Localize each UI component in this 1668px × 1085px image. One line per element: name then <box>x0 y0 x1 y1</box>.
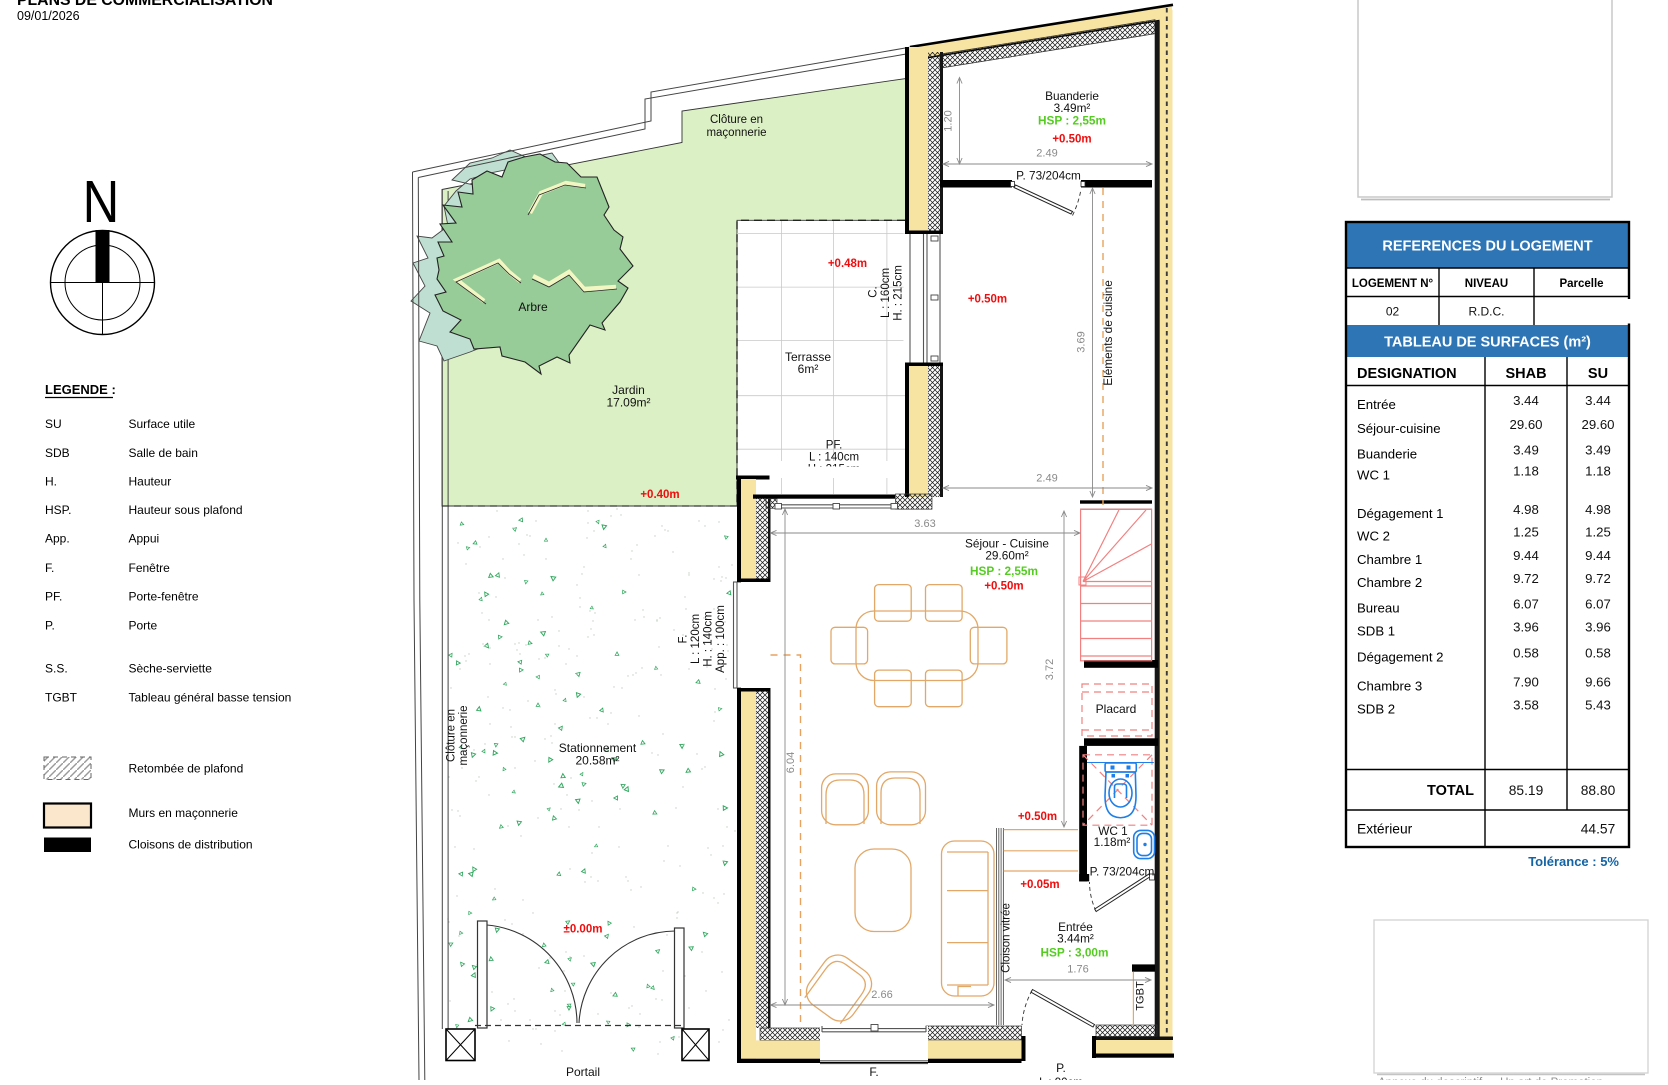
svg-text:P. 73/204cm: P. 73/204cm <box>1090 865 1155 879</box>
svg-text:3.49: 3.49 <box>1585 443 1611 458</box>
svg-text:3.72: 3.72 <box>1044 659 1056 680</box>
svg-text:Séjour-cuisine: Séjour-cuisine <box>1357 421 1441 436</box>
svg-text:HSP : 2,55m: HSP : 2,55m <box>1038 114 1106 128</box>
svg-text:N: N <box>83 168 120 234</box>
svg-text:3.44: 3.44 <box>1513 393 1539 408</box>
svg-text:HSP : 3,00m: HSP : 3,00m <box>1041 946 1109 960</box>
svg-text:Fenêtre: Fenêtre <box>129 561 171 575</box>
svg-text:20.58m²: 20.58m² <box>575 754 619 768</box>
svg-text:Hauteur sous plafond: Hauteur sous plafond <box>129 503 243 517</box>
svg-text:Appui: Appui <box>129 532 160 546</box>
svg-text:Clôture en: Clôture en <box>710 114 763 126</box>
svg-text:Salle de bain: Salle de bain <box>129 446 198 460</box>
svg-text:L : 140cm: L : 140cm <box>809 452 859 464</box>
svg-text:17.09m²: 17.09m² <box>606 396 650 410</box>
svg-text:SDB 2: SDB 2 <box>1357 702 1395 717</box>
svg-text:NIVEAU: NIVEAU <box>1465 278 1508 290</box>
svg-text:9.66: 9.66 <box>1585 675 1611 690</box>
svg-text:C.: C. <box>868 286 880 298</box>
svg-text:3.44m²: 3.44m² <box>1057 932 1094 946</box>
svg-text:Hauteur: Hauteur <box>129 475 172 489</box>
svg-text:Tolérance : 5%: Tolérance : 5% <box>1528 854 1619 869</box>
svg-text:Retombée de plafond: Retombée de plafond <box>129 762 244 776</box>
svg-text:Porte-fenêtre: Porte-fenêtre <box>129 590 199 604</box>
svg-text:Tableau général basse tension: Tableau général basse tension <box>129 690 292 704</box>
svg-text:TOTAL: TOTAL <box>1427 783 1474 799</box>
svg-text:Extérieur: Extérieur <box>1357 822 1413 837</box>
svg-text:Porte: Porte <box>129 619 158 633</box>
svg-text:+0.05m: +0.05m <box>1020 879 1059 891</box>
svg-text:SDB: SDB <box>45 446 70 460</box>
svg-text:H. : 140cm: H. : 140cm <box>703 611 715 667</box>
svg-text:4.98: 4.98 <box>1513 502 1539 517</box>
svg-text:9.72: 9.72 <box>1585 571 1611 586</box>
svg-text:+0.50m: +0.50m <box>984 581 1023 593</box>
svg-text:+0.40m: +0.40m <box>640 489 679 501</box>
svg-text:Cloison vitrée: Cloison vitrée <box>1001 903 1013 973</box>
svg-text:3.49: 3.49 <box>1513 443 1539 458</box>
svg-text:7.90: 7.90 <box>1513 675 1539 690</box>
svg-text:P.: P. <box>1056 1061 1066 1075</box>
svg-text:Bureau: Bureau <box>1357 601 1400 616</box>
svg-text:29.60: 29.60 <box>1509 417 1542 432</box>
svg-text:PLANS DE COMMERCIALISATION: PLANS DE COMMERCIALISATION <box>17 0 273 9</box>
svg-text:Portail: Portail <box>566 1065 600 1079</box>
svg-text:+0.50m: +0.50m <box>1052 134 1091 146</box>
svg-text:Placard: Placard <box>1096 702 1137 716</box>
svg-text:Sèche-serviette: Sèche-serviette <box>129 662 213 676</box>
svg-text:TGBT: TGBT <box>1135 981 1147 1011</box>
svg-text:PF.: PF. <box>826 440 843 452</box>
svg-text:Dégagement 1: Dégagement 1 <box>1357 506 1444 521</box>
svg-text:1.20: 1.20 <box>943 110 955 131</box>
svg-text:H. : 215cm: H. : 215cm <box>893 265 905 321</box>
svg-text:SU: SU <box>1588 366 1608 382</box>
svg-text:SDB 1: SDB 1 <box>1357 624 1395 639</box>
svg-text:SU: SU <box>45 417 62 431</box>
svg-text:Clôture en: Clôture en <box>446 709 458 762</box>
svg-text:maçonnerie: maçonnerie <box>458 705 470 765</box>
svg-text:09/01/2026: 09/01/2026 <box>17 9 80 23</box>
svg-text:Arbre: Arbre <box>518 300 548 314</box>
svg-text:S.S.: S.S. <box>45 662 68 676</box>
svg-text:L : 120cm: L : 120cm <box>690 614 702 664</box>
svg-text:Parcelle: Parcelle <box>1559 278 1603 290</box>
svg-text:Dégagement 2: Dégagement 2 <box>1357 650 1444 665</box>
svg-text:9.44: 9.44 <box>1513 548 1539 563</box>
svg-text:HSP : 2,55m: HSP : 2,55m <box>970 564 1038 578</box>
svg-text:6.04: 6.04 <box>785 752 797 773</box>
svg-text:5.43: 5.43 <box>1585 698 1611 713</box>
svg-text:+0.50m: +0.50m <box>968 294 1007 306</box>
svg-text:±0.00m: ±0.00m <box>564 924 603 936</box>
svg-text:0.58: 0.58 <box>1585 646 1611 661</box>
svg-text:3.63: 3.63 <box>914 518 935 530</box>
svg-text:4.98: 4.98 <box>1585 502 1611 517</box>
svg-text:Surface utile: Surface utile <box>129 417 196 431</box>
svg-text:WC 2: WC 2 <box>1357 529 1390 544</box>
svg-text:App. : 100cm: App. : 100cm <box>715 605 727 673</box>
svg-text:6.07: 6.07 <box>1513 597 1539 612</box>
svg-text:1.76: 1.76 <box>1067 964 1088 976</box>
svg-text:F.: F. <box>869 1065 878 1079</box>
svg-text:1.25: 1.25 <box>1585 525 1611 540</box>
svg-text:6m²: 6m² <box>798 362 819 376</box>
svg-text:DESIGNATION: DESIGNATION <box>1357 366 1457 382</box>
svg-text:3.96: 3.96 <box>1513 620 1539 635</box>
svg-text:0.58: 0.58 <box>1513 646 1539 661</box>
svg-text:Chambre 3: Chambre 3 <box>1357 679 1422 694</box>
svg-text:maçonnerie: maçonnerie <box>706 127 766 139</box>
svg-text:Buanderie: Buanderie <box>1357 447 1417 462</box>
svg-text:H.: H. <box>45 475 57 489</box>
svg-text:2.66: 2.66 <box>871 989 892 1001</box>
svg-text:R.D.C.: R.D.C. <box>1469 305 1505 319</box>
svg-text:3.58: 3.58 <box>1513 698 1539 713</box>
svg-text:Cloisons de distribution: Cloisons de distribution <box>129 838 253 852</box>
svg-text:WC 1: WC 1 <box>1357 468 1390 483</box>
svg-text:Eléments de cuisine: Eléments de cuisine <box>1101 280 1115 386</box>
svg-text:Chambre 1: Chambre 1 <box>1357 552 1422 567</box>
svg-text:3.69: 3.69 <box>1076 331 1088 352</box>
svg-text:+0.50m: +0.50m <box>1018 811 1057 823</box>
svg-text:LOGEMENT N°: LOGEMENT N° <box>1352 278 1434 290</box>
svg-text:LEGENDE :: LEGENDE : <box>45 382 116 397</box>
svg-text:SHAB: SHAB <box>1505 366 1546 382</box>
svg-text:2.49: 2.49 <box>1036 148 1057 160</box>
svg-text:Murs en maçonnerie: Murs en maçonnerie <box>129 806 239 820</box>
svg-text:29.60: 29.60 <box>1581 417 1614 432</box>
svg-text:9.44: 9.44 <box>1585 548 1611 563</box>
svg-text:L : 160cm: L : 160cm <box>880 268 892 318</box>
svg-text:9.72: 9.72 <box>1513 571 1539 586</box>
svg-text:App.: App. <box>45 532 70 546</box>
svg-text:1.18: 1.18 <box>1513 464 1539 479</box>
svg-text:1.18m²: 1.18m² <box>1094 835 1131 849</box>
svg-text:Chambre 2: Chambre 2 <box>1357 575 1422 590</box>
svg-text:02: 02 <box>1386 305 1400 319</box>
svg-text:1.18: 1.18 <box>1585 464 1611 479</box>
svg-text:+0.48m: +0.48m <box>828 258 867 270</box>
svg-text:F.: F. <box>45 561 54 575</box>
svg-text:Entrée: Entrée <box>1357 397 1396 412</box>
svg-text:F.: F. <box>678 635 690 644</box>
svg-text:85.19: 85.19 <box>1509 783 1544 798</box>
svg-text:REFERENCES DU LOGEMENT: REFERENCES DU LOGEMENT <box>1382 239 1592 255</box>
svg-text:44.57: 44.57 <box>1581 822 1616 837</box>
svg-text:TGBT: TGBT <box>45 690 78 704</box>
svg-text:3.44: 3.44 <box>1585 393 1611 408</box>
svg-text:6.07: 6.07 <box>1585 597 1611 612</box>
svg-text:TABLEAU DE SURFACES (m²): TABLEAU DE SURFACES (m²) <box>1384 335 1591 351</box>
svg-text:2.49: 2.49 <box>1036 473 1057 485</box>
svg-text:29.60m²: 29.60m² <box>985 549 1028 563</box>
svg-text:P.: P. <box>45 619 55 633</box>
svg-text:PF.: PF. <box>45 590 62 604</box>
svg-text:88.80: 88.80 <box>1581 783 1616 798</box>
svg-text:P. 73/204cm: P. 73/204cm <box>1016 169 1081 183</box>
svg-text:HSP.: HSP. <box>45 503 71 517</box>
svg-text:1.25: 1.25 <box>1513 525 1539 540</box>
svg-text:3.96: 3.96 <box>1585 620 1611 635</box>
